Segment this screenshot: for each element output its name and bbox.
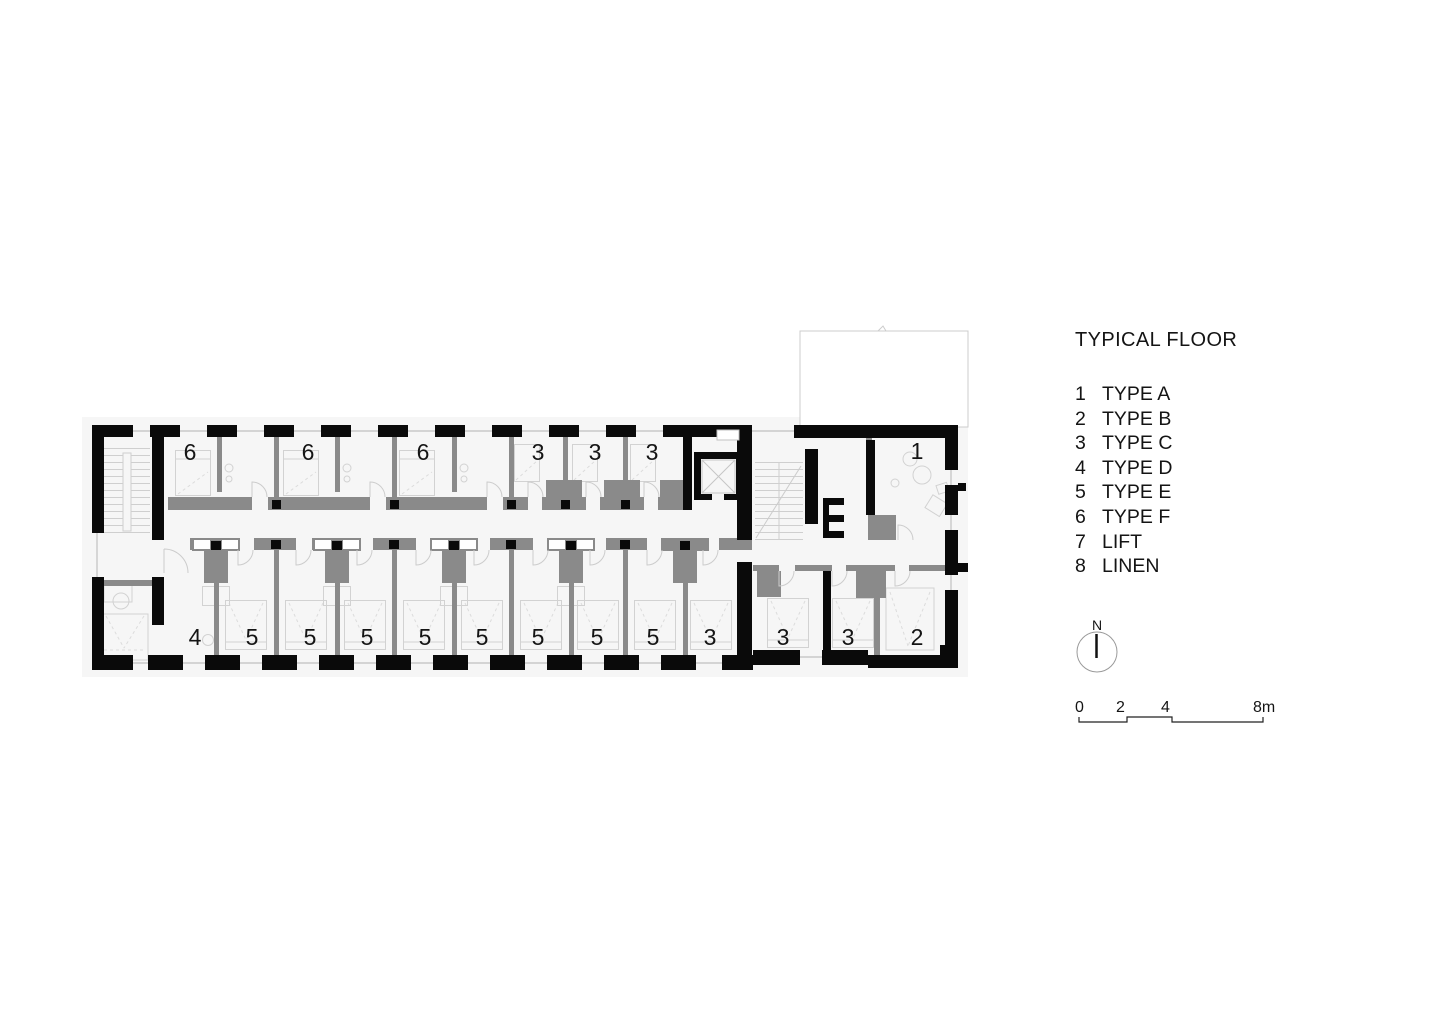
legend-item-label: TYPE B — [1102, 407, 1355, 432]
room-label: 3 — [646, 439, 659, 465]
room-label: 1 — [911, 438, 924, 464]
room-label: 4 — [189, 624, 202, 650]
legend-items: 1 TYPE A 2 TYPE B 3 TYPE C 4 TYPE D 5 TY… — [1075, 382, 1355, 579]
legend-item: 4 TYPE D — [1075, 456, 1355, 481]
legend-item: 5 TYPE E — [1075, 480, 1355, 505]
room-label: 6 — [417, 439, 430, 465]
legend-item-number: 8 — [1075, 554, 1102, 579]
stairs-left — [104, 448, 150, 536]
room-label: 6 — [302, 439, 315, 465]
legend-item-number: 4 — [1075, 456, 1102, 481]
scale-bar — [1079, 717, 1263, 722]
legend-item: 2 TYPE B — [1075, 407, 1355, 432]
legend-item-number: 7 — [1075, 530, 1102, 555]
room-label: 5 — [476, 624, 489, 650]
north-label: N — [1092, 617, 1102, 633]
linen-shelves-icon — [823, 498, 844, 538]
legend-item-number: 6 — [1075, 505, 1102, 530]
legend-item-label: LINEN — [1102, 554, 1355, 579]
scale-label-8m: 8m — [1253, 699, 1275, 717]
room-label: 5 — [246, 624, 259, 650]
stairs-right — [755, 462, 803, 540]
legend-item-label: TYPE E — [1102, 480, 1355, 505]
legend: TYPICAL FLOOR 1 TYPE A 2 TYPE B 3 TYPE C… — [1075, 329, 1355, 579]
room-label: 5 — [361, 624, 374, 650]
room-label: 6 — [184, 439, 197, 465]
room-label: 5 — [647, 624, 660, 650]
legend-item-number: 3 — [1075, 431, 1102, 456]
legend-item: 3 TYPE C — [1075, 431, 1355, 456]
north-arrow-icon: N — [1077, 617, 1117, 672]
legend-item: 8 LINEN — [1075, 554, 1355, 579]
scale-label-0: 0 — [1075, 699, 1084, 717]
legend-item-label: LIFT — [1102, 530, 1355, 555]
scale-label-2: 2 — [1116, 699, 1125, 717]
room-label: 2 — [911, 624, 924, 650]
legend-item-label: TYPE A — [1102, 382, 1355, 407]
room-label: 5 — [304, 624, 317, 650]
legend-item-number: 1 — [1075, 382, 1102, 407]
room-label: 5 — [419, 624, 432, 650]
legend-item: 1 TYPE A — [1075, 382, 1355, 407]
legend-item: 7 LIFT — [1075, 530, 1355, 555]
room-label: 3 — [777, 624, 790, 650]
legend-item-label: TYPE C — [1102, 431, 1355, 456]
room-label: 5 — [532, 624, 545, 650]
room-label: 3 — [704, 624, 717, 650]
legend-item-label: TYPE F — [1102, 505, 1355, 530]
roof-outline — [800, 331, 968, 427]
room-label: 3 — [589, 439, 602, 465]
room-label: 3 — [842, 624, 855, 650]
legend-title: TYPICAL FLOOR — [1075, 329, 1355, 352]
legend-item-number: 2 — [1075, 407, 1102, 432]
scale-label-4: 4 — [1161, 699, 1170, 717]
legend-item-label: TYPE D — [1102, 456, 1355, 481]
room-label: 5 — [591, 624, 604, 650]
legend-item: 6 TYPE F — [1075, 505, 1355, 530]
page: 6 6 6 3 3 3 1 4 5 5 5 5 5 5 5 5 3 3 3 2 … — [0, 0, 1440, 1018]
room-label: 3 — [532, 439, 545, 465]
legend-item-number: 5 — [1075, 480, 1102, 505]
